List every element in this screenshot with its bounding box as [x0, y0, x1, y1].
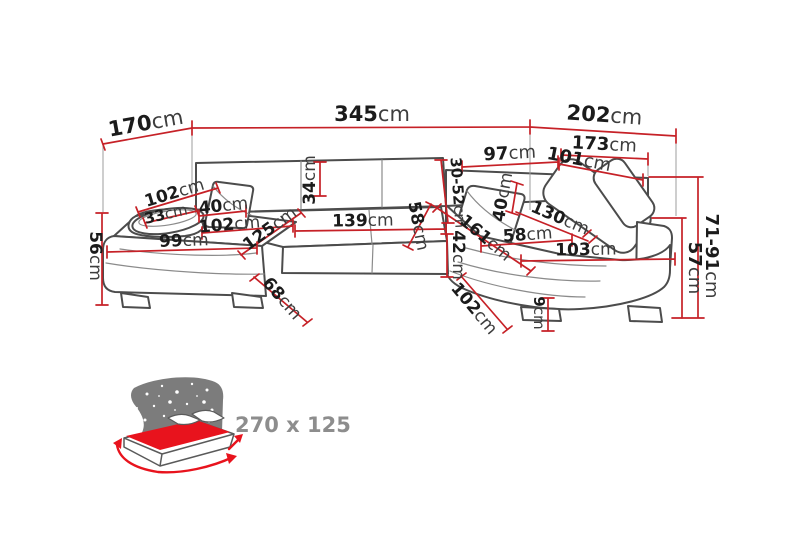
- dim-label-68: 68cm: [258, 273, 306, 324]
- dim-label-202: 202cm: [566, 100, 643, 129]
- sofa-dimension-diagram: 170cm 345cm 202cm 173cm 97cm 101cm 30-52…: [0, 0, 800, 533]
- dim-label-345: 345cm: [334, 102, 410, 126]
- sofa-leg: [628, 306, 662, 322]
- dim-label-34: 34cm: [300, 155, 320, 205]
- dim-label-42: 42cm: [448, 230, 468, 280]
- dim-label-97: 97cm: [483, 142, 537, 166]
- sofa-dimension-diagram-page: 170cm 345cm 202cm 173cm 97cm 101cm 30-52…: [0, 0, 800, 533]
- dim-label-99: 99cm: [159, 230, 209, 252]
- dim-label-56: 56cm: [85, 231, 105, 281]
- dim-label-139: 139cm: [332, 210, 394, 231]
- sleeping-area-size: 270 x 125: [235, 413, 351, 437]
- sleeping-function-icon: 270 x 125: [113, 377, 351, 472]
- dim-label-57: 57cm: [684, 242, 705, 295]
- dim-label-103: 103cm: [555, 239, 617, 260]
- dim-label-9: 9cm: [530, 296, 548, 329]
- sofa-leg: [121, 293, 150, 308]
- dim-label-58-right: 58cm: [502, 223, 553, 246]
